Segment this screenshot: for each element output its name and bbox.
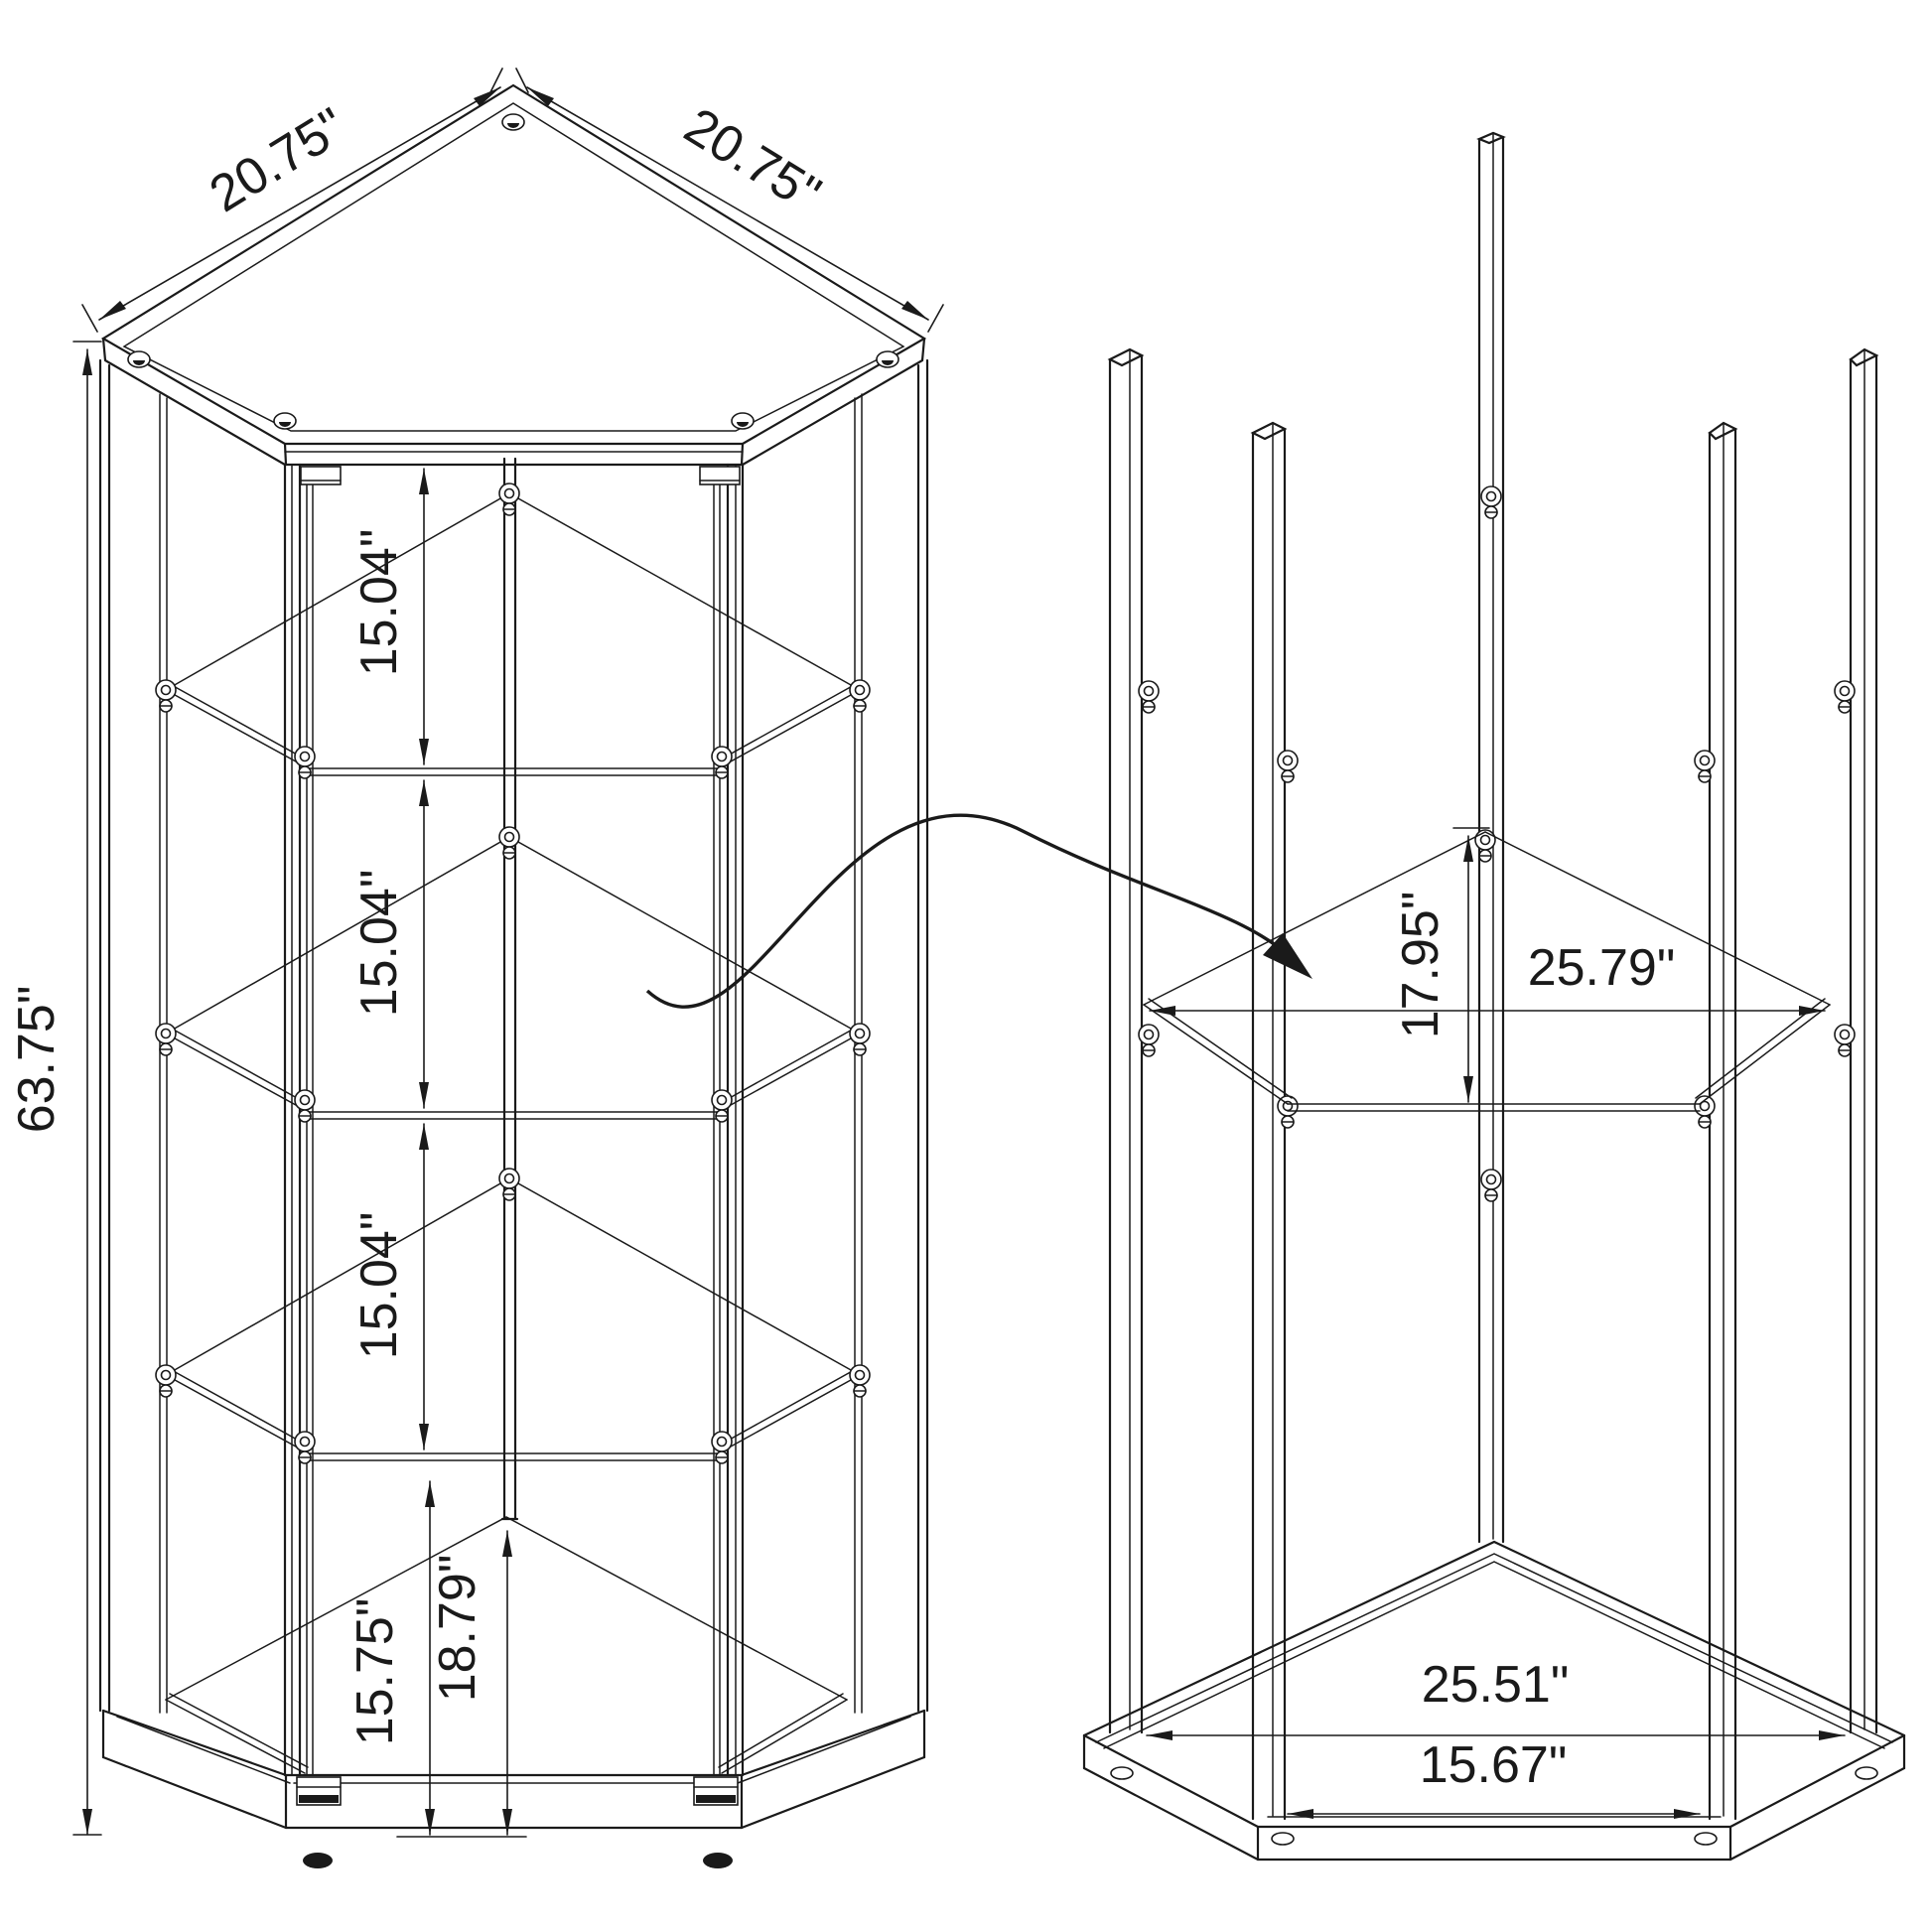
glass-shelf	[156, 483, 870, 778]
glass-shelf	[156, 827, 870, 1122]
dim-label-bottom-center: 18.79"	[429, 1555, 486, 1703]
dim-shelf-depth: 17.95"	[1392, 828, 1489, 1102]
dim-label-top-right: 20.75"	[674, 97, 830, 223]
screw-icon	[732, 413, 754, 429]
dim-top-left-edge: 20.75"	[82, 69, 502, 332]
dim-label-shelf-gap-1: 15.04"	[350, 529, 408, 677]
shelf-pin-icon	[1278, 751, 1298, 782]
cabinet-base	[103, 1711, 924, 1828]
shelf-pin-icon	[850, 1024, 870, 1055]
dim-label-height: 63.75"	[8, 986, 66, 1134]
dim-shelf-gap-2: 15.04"	[350, 780, 429, 1108]
glass-shelf	[156, 1169, 870, 1463]
door-hinge-top-left	[301, 467, 341, 484]
dim-label-bottom-front: 15.75"	[346, 1598, 404, 1746]
foot-glide	[703, 1853, 733, 1868]
door-bracket-bottom-right	[694, 1777, 738, 1805]
shelf-pin-icon	[156, 680, 176, 712]
shelf-pin-icon	[1481, 1170, 1501, 1201]
door-hinge-top-right	[700, 467, 740, 484]
shelf-pin-icon	[295, 1090, 315, 1122]
frame-post-right-front	[1710, 423, 1735, 1819]
cabinet-frame-posts	[100, 360, 927, 1775]
dim-top-right-edge: 20.75"	[516, 69, 943, 332]
assembled-cabinet-view: 20.75" 20.75" 63.75" 15.04"	[8, 69, 943, 1868]
dim-base-front-width: 15.67"	[1288, 1736, 1700, 1819]
foot-glide	[1111, 1767, 1133, 1779]
foot-glide	[303, 1853, 333, 1868]
dim-label-base-width: 25.51"	[1422, 1656, 1570, 1714]
dim-shelf-gap-1: 15.04"	[350, 469, 429, 764]
screw-icon	[274, 413, 296, 429]
screw-icon	[877, 351, 898, 367]
shelf-pin-icon	[1695, 751, 1715, 782]
foot-glide	[1695, 1833, 1717, 1845]
frame-post-left-front	[1253, 423, 1285, 1819]
dim-label-shelf-gap-3: 15.04"	[350, 1212, 408, 1360]
frame-post-right-outer	[1851, 349, 1876, 1732]
dim-shelf-gap-3: 15.04"	[350, 1124, 429, 1449]
dim-label-shelf-gap-2: 15.04"	[350, 870, 408, 1018]
dim-overall-height: 63.75"	[8, 342, 101, 1835]
frame-post-left-outer	[1110, 349, 1142, 1732]
exploded-frame-view: 17.95" 25.79" 25.51" 15.67"	[1084, 133, 1904, 1860]
assembly-direction-arrow	[647, 815, 1312, 1007]
shelf-pin-icon	[850, 1365, 870, 1397]
shelf-pin-icon	[295, 747, 315, 778]
dim-label-shelf-depth: 17.95"	[1392, 892, 1449, 1039]
foot-glide	[1856, 1767, 1877, 1779]
dim-label-base-front-width: 15.67"	[1420, 1736, 1568, 1794]
shelf-pin-icon	[295, 1432, 315, 1463]
exploded-glass-shelf	[1144, 832, 1830, 1111]
foot-glide	[1272, 1833, 1294, 1845]
screw-icon	[128, 351, 150, 367]
shelf-pin-icon	[1278, 1096, 1298, 1128]
shelf-pin-icon	[156, 1024, 176, 1055]
technical-drawing-page: 20.75" 20.75" 63.75" 15.04"	[0, 0, 1932, 1932]
dim-label-top-left: 20.75"	[201, 97, 356, 223]
cabinet-dimension-diagram: 20.75" 20.75" 63.75" 15.04"	[0, 0, 1932, 1932]
shelf-pin-icon	[850, 680, 870, 712]
dim-label-shelf-width: 25.79"	[1528, 939, 1676, 997]
shelf-pin-icon	[156, 1365, 176, 1397]
post-connector-icon	[1481, 486, 1501, 518]
door-bracket-bottom-left	[297, 1777, 341, 1805]
cabinet-top-panel	[103, 85, 924, 465]
dim-bottom-center: 18.79"	[429, 1531, 512, 1835]
screw-icon	[502, 114, 524, 130]
